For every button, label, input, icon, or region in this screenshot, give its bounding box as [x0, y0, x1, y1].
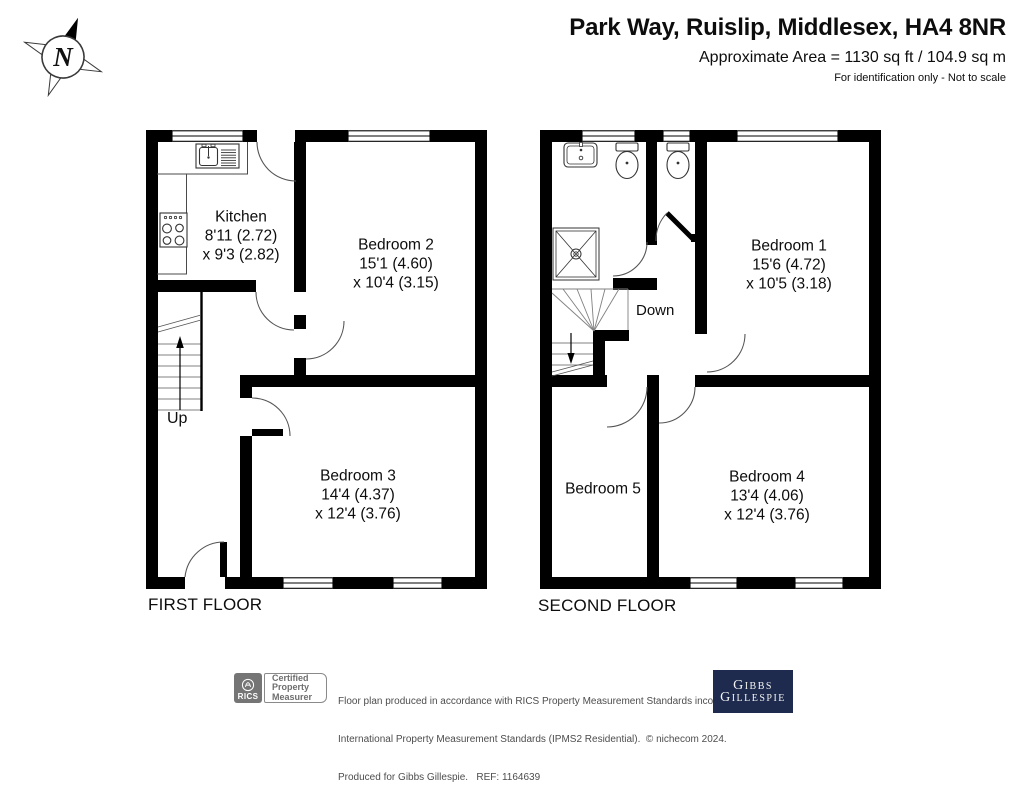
room-label-bedroom-4: Bedroom 4 13'4 (4.06) x 12'4 (3.76)	[724, 468, 810, 525]
rics-emblem-icon	[241, 678, 255, 692]
page-title: Park Way, Ruislip, Middlesex, HA4 8NR	[569, 14, 1006, 42]
compass-north-icon: N	[10, 3, 116, 110]
rics-logo: RICS	[234, 673, 262, 703]
rics-label: RICS	[238, 692, 259, 701]
compass-letter: N	[52, 42, 74, 72]
stairs-up-label: Up	[167, 410, 187, 428]
floorplan-page: { "header": { "title": "Park Way, Ruisli…	[0, 0, 1024, 724]
kitchen-sink-icon	[196, 144, 239, 168]
first-floor-windows	[172, 131, 442, 589]
down-arrow-icon	[567, 353, 574, 364]
room-label-bedroom-2: Bedroom 2 15'1 (4.60) x 10'4 (3.15)	[353, 236, 439, 293]
room-label-bedroom-3: Bedroom 3 14'4 (4.37) x 12'4 (3.76)	[315, 467, 401, 524]
gibbs-gillespie-logo: Gibbs Gillespie	[713, 670, 793, 713]
second-floor-walls	[540, 130, 881, 589]
certified-property-measurer-badge: Certified Property Measurer	[264, 673, 327, 703]
shower-icon	[553, 228, 599, 280]
wc-door-leaf	[667, 213, 694, 240]
first-floor-stairs	[158, 290, 202, 411]
toilet-icon	[616, 143, 638, 179]
kitchen-hob-icon	[160, 213, 187, 247]
approximate-area: Approximate Area = 1130 sq ft / 104.9 sq…	[569, 49, 1006, 67]
header: Park Way, Ruislip, Middlesex, HA4 8NR Ap…	[569, 14, 1006, 84]
footer-disclaimer: Floor plan produced in accordance with R…	[338, 670, 753, 798]
stairs-down-label: Down	[636, 302, 674, 319]
bathroom-sink-icon	[564, 143, 597, 168]
second-floor-plan	[540, 130, 881, 589]
first-floor-label: FIRST FLOOR	[148, 595, 262, 615]
floorplan-linework: N	[0, 0, 1024, 724]
up-arrow-icon	[176, 336, 184, 348]
toilet-icon	[667, 143, 689, 179]
room-label-bedroom-5: Bedroom 5	[565, 480, 641, 499]
room-label-kitchen: Kitchen 8'11 (2.72) x 9'3 (2.82)	[202, 208, 279, 265]
identification-note: For identification only - Not to scale	[569, 72, 1006, 84]
room-label-bedroom-1: Bedroom 1 15'6 (4.72) x 10'5 (3.18)	[746, 237, 832, 294]
second-floor-label: SECOND FLOOR	[538, 596, 676, 616]
